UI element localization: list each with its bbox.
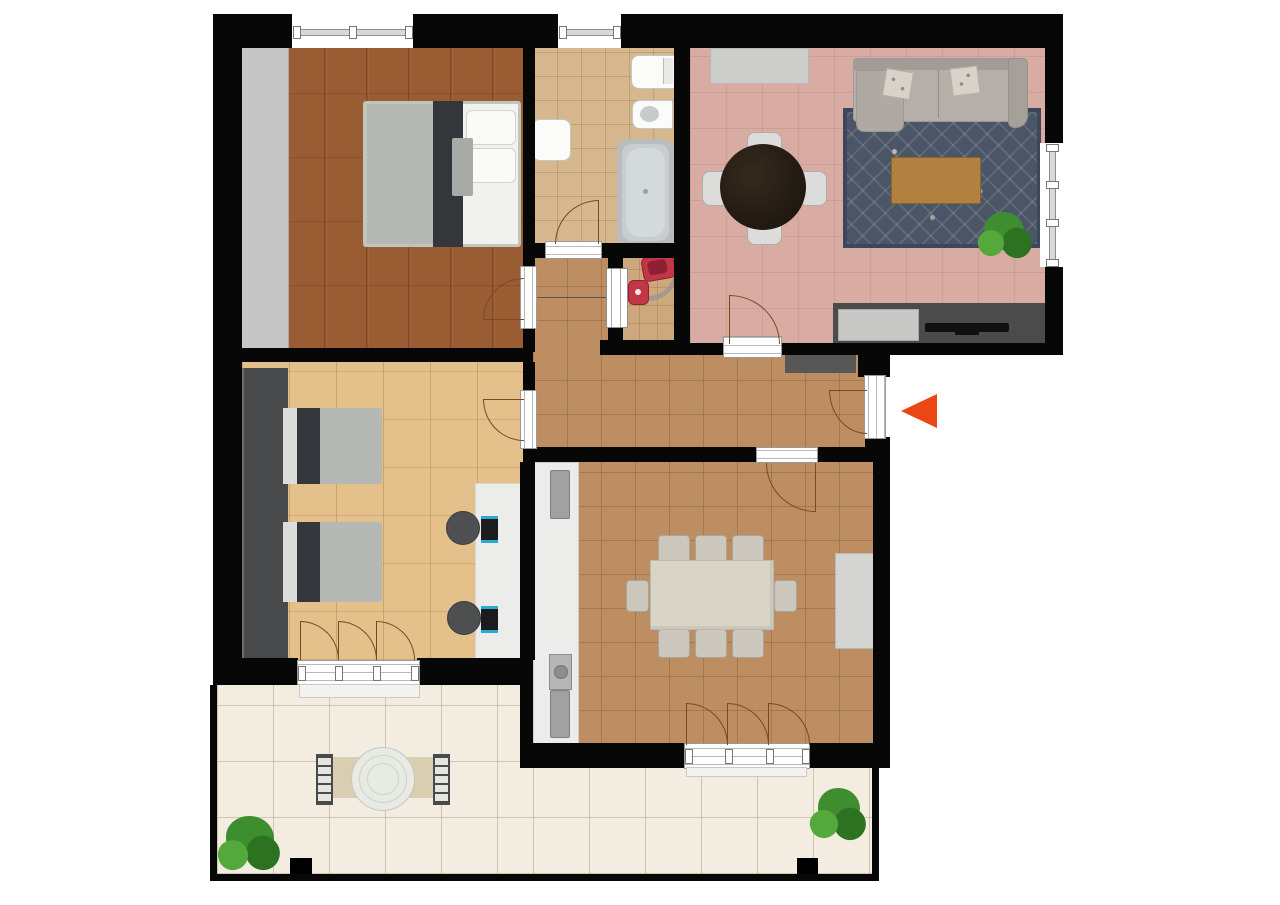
sofa-pillow — [949, 65, 980, 96]
window-glass-line — [561, 29, 618, 36]
bed-runner — [297, 408, 320, 484]
corridor-floor — [533, 256, 608, 355]
window-mullion — [293, 26, 301, 39]
dining-cabinet — [835, 553, 875, 649]
terrace-border — [210, 874, 879, 881]
kitchen-appliance — [550, 470, 570, 519]
potted-plant-living-room — [976, 206, 1036, 264]
window-glass-line — [1049, 146, 1056, 264]
window-mullion — [1046, 259, 1059, 267]
wall — [520, 462, 533, 745]
wall — [533, 447, 756, 462]
window-mullion — [613, 26, 621, 39]
dining-door-frame — [756, 447, 818, 463]
dining-chair — [658, 629, 690, 658]
door-mullion — [685, 749, 693, 764]
wc-door-leader-line — [534, 297, 606, 298]
wc-washbasin — [628, 280, 649, 305]
floor-plan — [0, 0, 1280, 905]
bedroom1-wardrobe — [240, 48, 289, 348]
window-mullion — [1046, 219, 1059, 227]
terrace-plant-southwest — [218, 812, 288, 876]
bathroom-window — [558, 16, 621, 48]
wall — [873, 462, 890, 745]
entrance-arrow-icon — [901, 394, 937, 428]
dining-chair — [774, 580, 797, 612]
door-mullion — [298, 666, 306, 681]
bedroom1-window — [292, 16, 413, 48]
toilet — [631, 55, 676, 89]
wall — [600, 340, 690, 355]
bathtub — [617, 139, 674, 246]
terrace-bench — [433, 754, 450, 805]
bidet — [632, 100, 673, 129]
bathtub-drain — [643, 189, 648, 194]
bedroom2-door-sill — [299, 684, 420, 698]
office-chair — [446, 511, 480, 545]
round-dining-table — [720, 144, 806, 230]
tv-lowboard — [833, 303, 1048, 343]
bed-sheet — [283, 522, 297, 602]
wall — [674, 14, 690, 345]
wc-toilet-seat — [647, 259, 668, 276]
door-mullion — [725, 749, 733, 764]
door-mullion — [802, 749, 810, 764]
bed-blanket — [367, 104, 433, 244]
bed-sheet — [283, 408, 297, 484]
wc-basin-drain — [635, 289, 641, 295]
window-mullion — [405, 26, 413, 39]
wall — [520, 743, 685, 768]
sofa-cushion-divider — [938, 70, 939, 118]
window-mullion — [349, 26, 357, 39]
single-bed — [283, 408, 382, 484]
wall — [818, 447, 890, 462]
wall — [213, 658, 298, 685]
wall — [807, 743, 890, 768]
window-mullion — [1046, 144, 1059, 152]
tv-lowboard-drawer — [838, 309, 919, 341]
door-mullion — [766, 749, 774, 764]
bedroom2-wardrobe — [242, 368, 288, 658]
wall — [858, 343, 890, 377]
door-mullion — [373, 666, 381, 681]
wall — [523, 362, 535, 392]
wall — [1045, 265, 1063, 353]
window-mullion — [1046, 181, 1059, 189]
wc-pocket-door — [606, 268, 628, 328]
tv-stand — [955, 332, 979, 335]
tv — [925, 323, 1009, 332]
wall — [690, 343, 723, 355]
washbasin — [532, 119, 571, 161]
dining-chair — [695, 629, 727, 658]
terrace-border — [210, 685, 217, 881]
office-chair — [447, 601, 481, 635]
dining-door-sill — [686, 767, 807, 777]
living-room-window — [1040, 143, 1065, 267]
entrance-door-frame — [864, 375, 886, 439]
terrace-round-table — [351, 747, 415, 811]
dining-french-door-frame — [684, 743, 810, 769]
wall — [413, 14, 558, 48]
terrace-border — [872, 768, 879, 881]
terrace-plant-east — [810, 786, 872, 846]
bed-runner — [297, 522, 320, 602]
dining-chair — [626, 580, 649, 612]
laptop — [481, 516, 498, 543]
bidet-bowl — [640, 106, 659, 122]
dining-table — [650, 560, 774, 630]
terrace-bench — [316, 754, 333, 805]
wall — [417, 658, 533, 685]
terrace-table-ring — [367, 763, 399, 795]
wall — [523, 14, 535, 268]
laptop — [481, 606, 498, 633]
door-mullion — [411, 666, 419, 681]
bedroom2-french-door-frame — [297, 660, 420, 685]
bed-folded-blanket — [452, 138, 473, 196]
bed-pillow — [466, 110, 516, 145]
door-mullion — [335, 666, 343, 681]
bed-pillow — [466, 148, 516, 183]
wall — [1045, 14, 1063, 145]
dining-chair — [732, 629, 764, 658]
coffee-table — [891, 157, 981, 204]
sofa-backrest — [853, 58, 1025, 70]
kitchen-appliance — [550, 690, 570, 738]
sofa-arm-right — [1008, 58, 1028, 128]
wall — [240, 348, 533, 362]
window-mullion — [559, 26, 567, 39]
single-bed — [283, 522, 382, 602]
washing-machine-door — [554, 665, 568, 679]
wall — [213, 14, 242, 685]
double-bed — [363, 101, 521, 247]
washing-machine — [549, 654, 572, 690]
toilet-tank — [663, 58, 673, 84]
sideboard — [710, 48, 809, 84]
sofa-pillow — [882, 68, 914, 100]
wall — [782, 343, 1063, 355]
hallway-console — [785, 353, 856, 373]
desk — [475, 483, 525, 662]
